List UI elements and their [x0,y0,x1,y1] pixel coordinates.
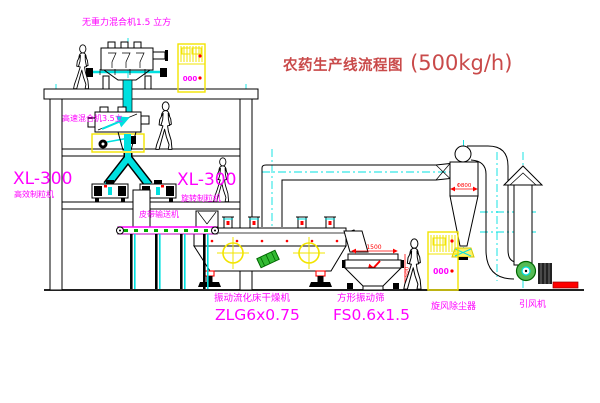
label-cyclone: 旋风除尘器 [431,300,476,312]
label-sieve-name: 方形振动筛 [337,292,385,304]
induced-draft-fan [517,262,579,289]
label-fan: 引风机 [519,298,546,310]
fan-base [553,282,578,288]
control-cabinet-2: 000 [428,232,458,290]
belt-conveyor [117,227,219,289]
label-belt-conveyor: 皮带输送机 [139,209,179,219]
title-capacity: (500kg/h) [410,51,512,75]
cyclone-diameter-dim: Φ800 [457,183,472,189]
flowchart-canvas: 000 [0,0,600,403]
label-dryer-name: 振动流化床干燥机 [214,292,291,304]
cabinet-display: 000 [433,267,449,276]
page-title: 农药生产线流程图 (500kg/h) [282,51,512,75]
label-high-speed-mixer: 高速混合机3.5立 [62,113,123,123]
control-cabinet-1: 000 [178,44,205,92]
indicator-light [198,76,201,79]
worker-figure-ground [404,239,421,289]
label-granulator-right-model: XL-300 [177,170,236,190]
dryer-nozzles [222,217,336,228]
indicator-light [450,269,453,272]
label-granulator-right-name: 旋转制粒机 [181,193,221,203]
fluid-bed-dryer [194,211,346,287]
label-granulator-left-model: XL-300 [13,169,72,189]
indicator-light [450,239,453,242]
sieve-length-dim: 1500 [366,244,381,251]
discharge-chute [133,190,150,227]
worker-figure-floor2 [156,102,172,149]
title-text: 农药生产线流程图 [282,56,403,74]
label-zero-gravity-mixer: 无重力混合机1.5 立方 [82,16,171,28]
dryer-foot-right [309,271,332,287]
worker-figure-roof [74,45,89,89]
production-line-diagram: 000 [0,0,600,403]
exhaust-stack [504,166,542,265]
cyclone-separator: Φ800 [450,146,517,279]
indicator-light [198,54,201,57]
belt-hatch [124,229,208,232]
dryer-foot-left [198,271,221,287]
exhaust-duct [262,164,450,228]
cabinet-display: 000 [183,75,198,83]
label-granulator-left-name: 高效制粒机 [14,189,54,199]
label-dryer-model: ZLG6x0.75 [215,306,300,324]
granulator-left [92,180,128,202]
zero-gravity-mixer [86,42,168,115]
vibrating-sieve: 1500 500 [342,230,411,290]
label-sieve-model: FS0.6x1.5 [333,306,410,324]
